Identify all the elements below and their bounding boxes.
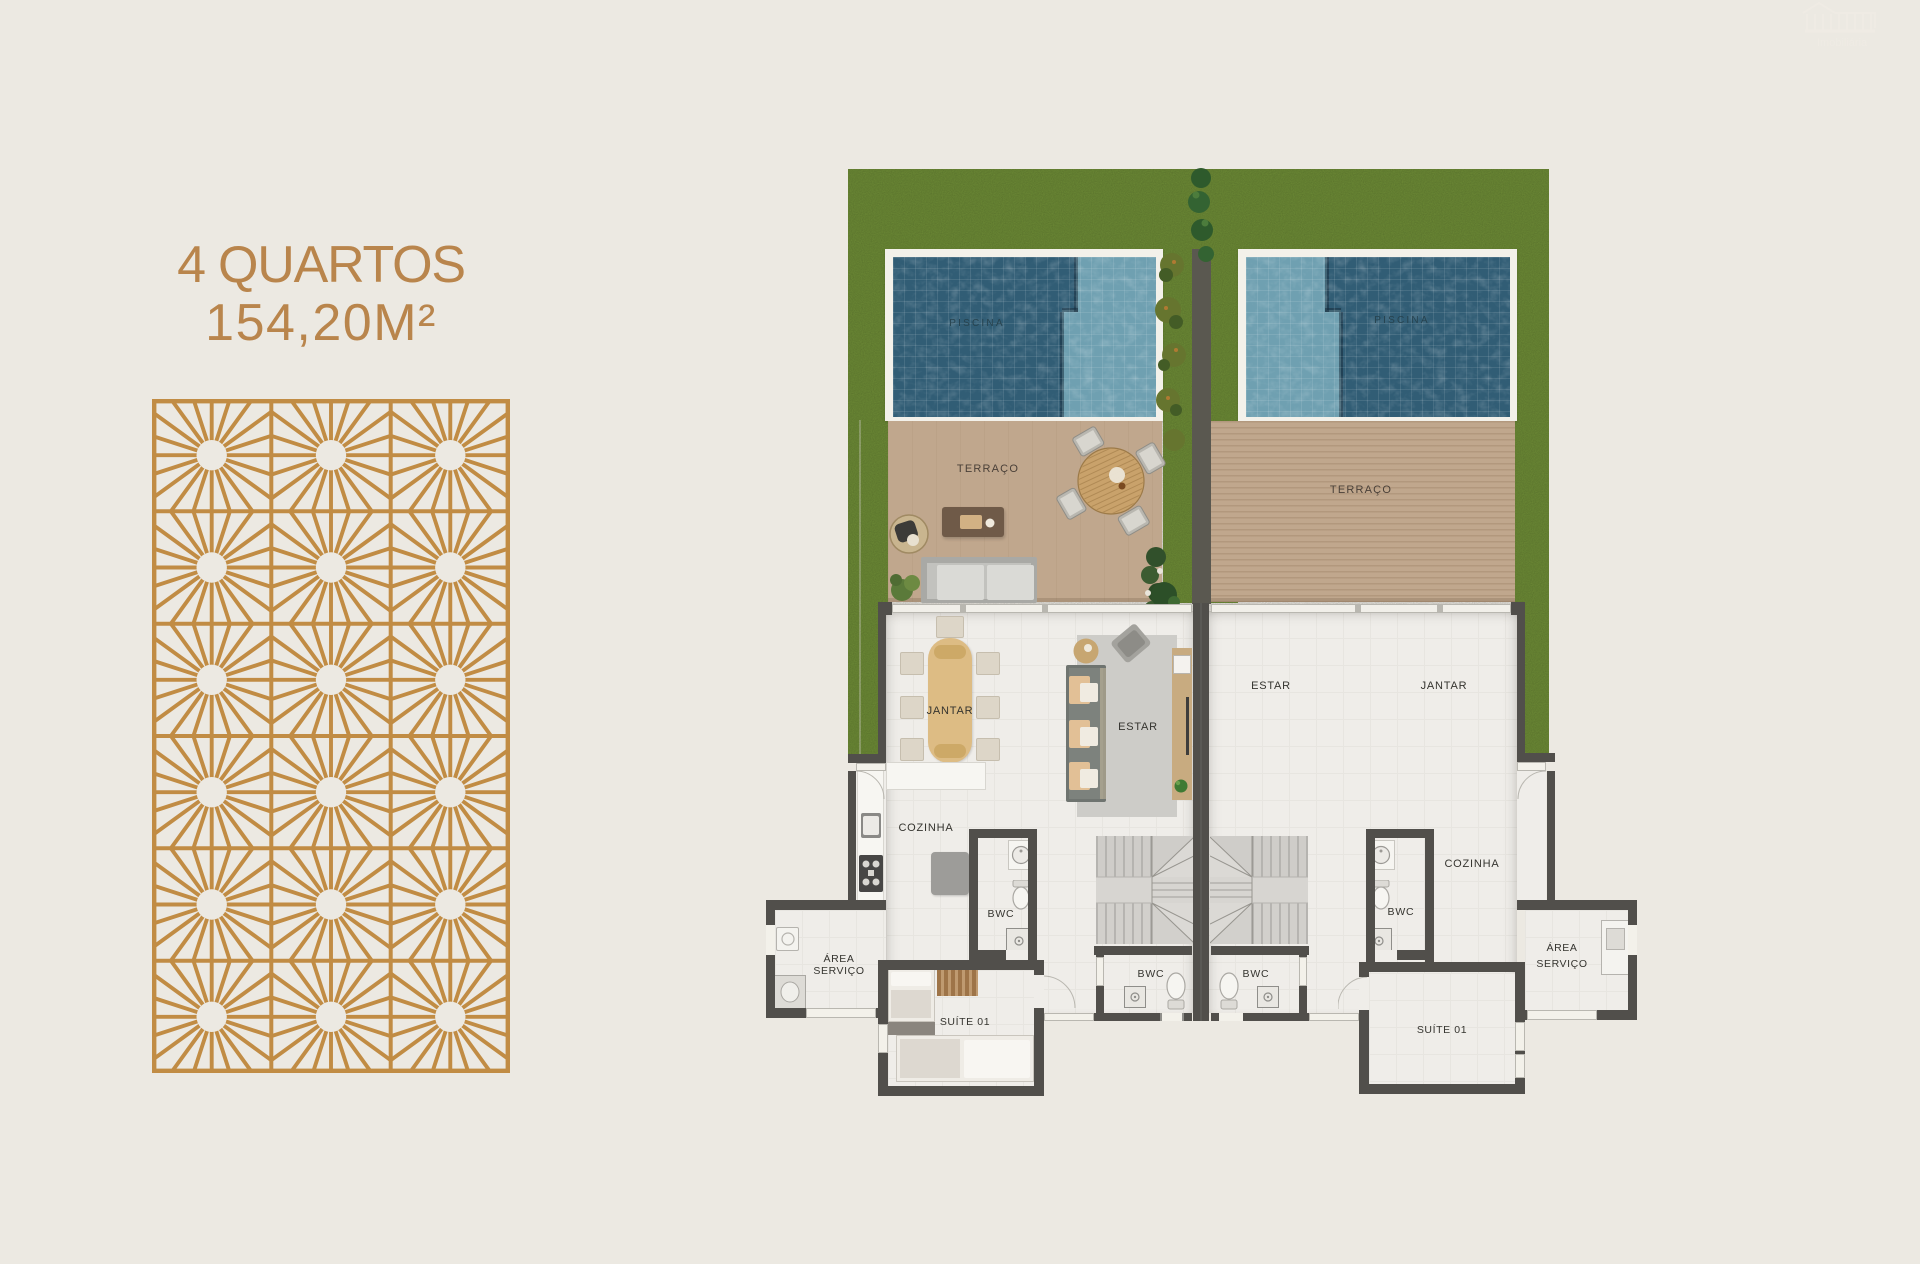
svg-text:Imobiliária: Imobiliária [1817, 37, 1868, 49]
